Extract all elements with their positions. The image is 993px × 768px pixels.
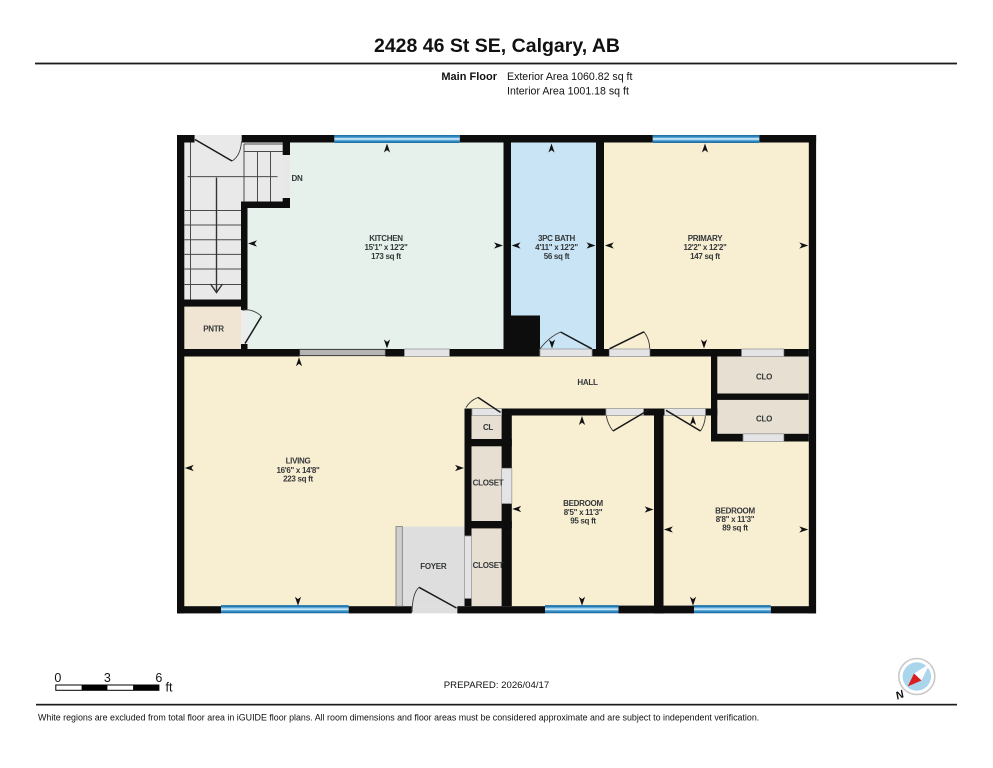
svg-text:Main Floor: Main Floor bbox=[441, 71, 497, 83]
svg-text:PNTR: PNTR bbox=[203, 325, 224, 334]
svg-text:3: 3 bbox=[104, 671, 111, 685]
svg-text:CLO: CLO bbox=[756, 414, 772, 423]
svg-text:Exterior Area 1060.82 sq ft: Exterior Area 1060.82 sq ft bbox=[507, 71, 632, 83]
svg-text:6: 6 bbox=[155, 671, 162, 685]
svg-text:ft: ft bbox=[166, 681, 173, 695]
svg-text:HALL: HALL bbox=[577, 378, 598, 387]
svg-text:CLO: CLO bbox=[756, 373, 772, 382]
svg-text:FOYER: FOYER bbox=[420, 562, 447, 571]
svg-text:CL: CL bbox=[483, 423, 493, 432]
svg-text:CLOSET: CLOSET bbox=[473, 479, 504, 488]
svg-text:DN: DN bbox=[292, 174, 303, 183]
svg-text:0: 0 bbox=[54, 671, 61, 685]
svg-text:White regions are excluded fro: White regions are excluded from total fl… bbox=[38, 713, 759, 723]
svg-text:2428 46 St SE, Calgary, AB: 2428 46 St SE, Calgary, AB bbox=[374, 35, 620, 57]
svg-text:CLOSET: CLOSET bbox=[473, 561, 504, 570]
svg-text:PREPARED: 2026/04/17: PREPARED: 2026/04/17 bbox=[444, 680, 549, 691]
svg-text:Interior Area 1001.18 sq ft: Interior Area 1001.18 sq ft bbox=[507, 86, 629, 98]
